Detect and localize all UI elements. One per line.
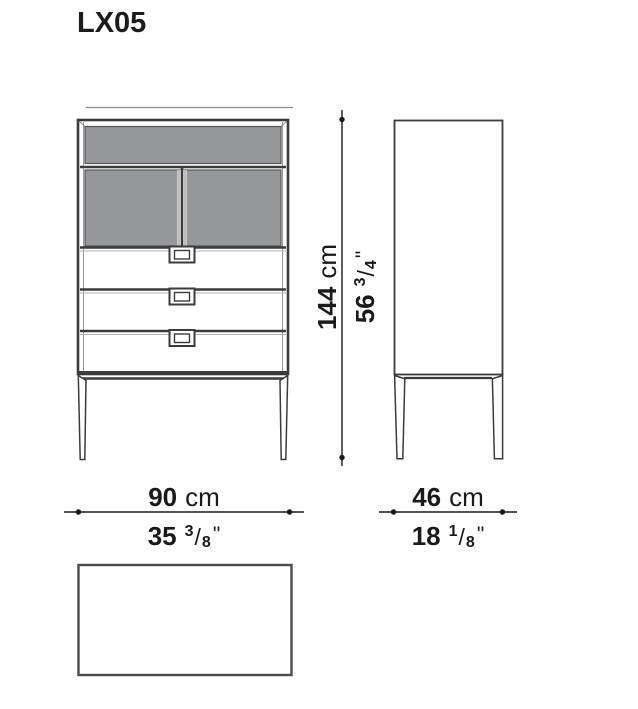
cabinet-body-side bbox=[395, 121, 503, 375]
top-view-outline bbox=[79, 565, 292, 675]
side-view bbox=[395, 121, 503, 459]
side-front-leg bbox=[395, 376, 405, 459]
side-back-leg bbox=[492, 376, 502, 459]
dim-dot bbox=[287, 509, 292, 514]
depth-dimension-cm-label: 46cm bbox=[348, 483, 548, 511]
drawer-handle-1 bbox=[170, 247, 195, 263]
height-dimension-cm-label: 144cm bbox=[313, 187, 341, 387]
drawer-handle-3 bbox=[170, 330, 195, 346]
top-flap-panel bbox=[85, 127, 281, 164]
dim-dot bbox=[339, 455, 344, 460]
depth-dimension-inch-label: 181/8" bbox=[348, 518, 548, 546]
top-view bbox=[79, 565, 292, 675]
front-width-dimension-cm-label: 90cm bbox=[84, 483, 284, 511]
front-width-dimension-inch-label: 353/8" bbox=[84, 518, 284, 546]
dim-dot bbox=[339, 117, 344, 122]
height-dimension-inch-label: 563/4" bbox=[347, 187, 375, 387]
front-right-leg bbox=[280, 376, 288, 460]
front-view bbox=[78, 108, 293, 460]
dim-dot bbox=[76, 509, 81, 514]
spec-sheet-page: LX05 bbox=[0, 0, 638, 709]
drawer-handle-2 bbox=[170, 289, 195, 305]
front-left-leg bbox=[78, 376, 86, 460]
